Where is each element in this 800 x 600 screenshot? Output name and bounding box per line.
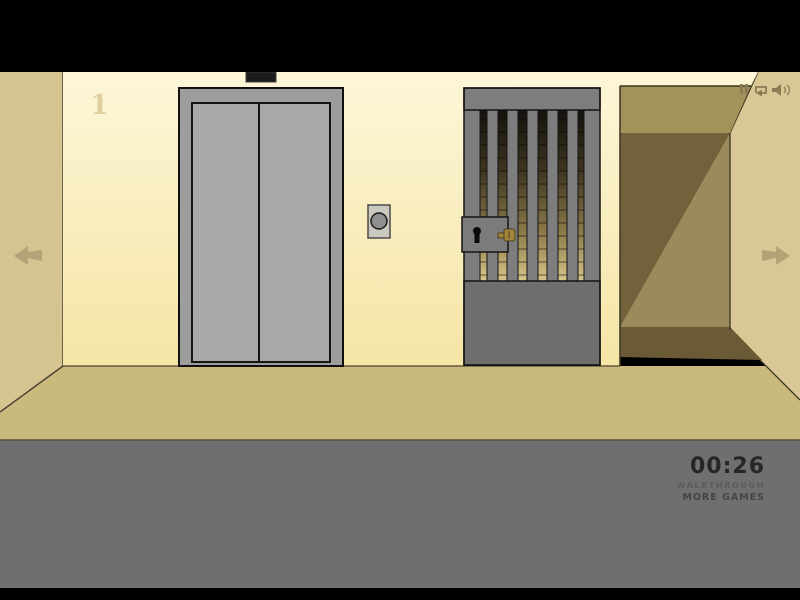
keyhole-slot bbox=[475, 233, 480, 243]
elevator[interactable] bbox=[179, 88, 343, 366]
top-letterbox bbox=[0, 0, 800, 72]
walkthrough-link[interactable]: WALKTHROUGH bbox=[677, 482, 765, 490]
elevator-door-left[interactable] bbox=[192, 103, 259, 362]
gate-bar bbox=[527, 110, 538, 281]
corridor-lintel bbox=[620, 72, 758, 86]
gate-bar bbox=[547, 110, 558, 281]
game-stage: 1 00:26 WALKTHROUGH MORE GAMES bbox=[0, 0, 800, 600]
timer: 00:26 bbox=[677, 456, 765, 478]
elevator-indicator bbox=[246, 72, 276, 82]
gate-left-stile bbox=[464, 110, 480, 281]
scene-canvas bbox=[0, 0, 800, 600]
gate-right-stile bbox=[584, 110, 600, 281]
gate-lower-panel bbox=[464, 281, 600, 365]
left-wall bbox=[0, 72, 63, 412]
bottom-letterbox bbox=[0, 588, 800, 600]
room-number: 1 bbox=[90, 90, 109, 121]
gate-bar bbox=[507, 110, 518, 281]
elevator-door-right[interactable] bbox=[259, 103, 330, 362]
gate-top-rail bbox=[464, 88, 600, 110]
corridor-ceiling bbox=[620, 86, 751, 133]
gate-bar bbox=[487, 110, 498, 281]
call-button-circle[interactable] bbox=[371, 213, 387, 229]
gate-bar bbox=[567, 110, 578, 281]
elevator-call-button[interactable] bbox=[368, 205, 390, 238]
jail-gate[interactable] bbox=[462, 88, 600, 365]
floor bbox=[0, 366, 800, 440]
hud-panel: 00:26 WALKTHROUGH MORE GAMES bbox=[677, 456, 765, 503]
more-games-link[interactable]: MORE GAMES bbox=[677, 493, 765, 503]
